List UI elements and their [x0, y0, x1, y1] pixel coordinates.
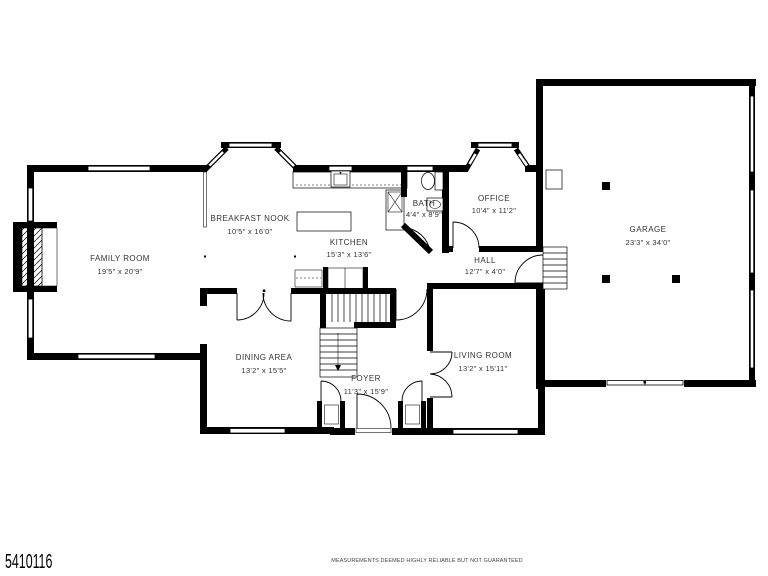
foyer-dims: 11'3" x 15'9" — [344, 387, 389, 396]
hall-dims: 12'7" x 4'0" — [465, 267, 506, 276]
kitchen-name: KITCHEN — [330, 238, 368, 247]
cased-opening-divider — [204, 172, 207, 227]
breakfast-nook-name: BREAKFAST NOOK — [210, 214, 289, 223]
living-room-dims: 13'2" x 15'11" — [459, 364, 508, 373]
room-breakfast-nook: BREAKFAST NOOK 10'5" x 16'0" — [210, 214, 289, 236]
fireplace — [13, 222, 57, 292]
room-foyer: FOYER 11'3" x 15'9" — [344, 374, 389, 396]
room-living-room: LIVING ROOM 13'2" x 15'11" — [454, 351, 512, 373]
floor-plan-canvas: FAMILY ROOM 19'5" x 20'9" BREAKFAST NOOK… — [0, 0, 768, 576]
bath-dims: 4'4" x 8'9" — [406, 210, 442, 219]
kitchen-dims: 15'3" x 13'6" — [326, 250, 371, 259]
toilet — [422, 172, 444, 190]
hall-name: HALL — [474, 256, 496, 265]
bath-diagonal-wall — [403, 225, 431, 252]
dining-area-name: DINING AREA — [236, 353, 293, 362]
kitchen-island — [297, 212, 351, 231]
room-garage: GARAGE 23'3" x 34'0" — [625, 225, 670, 247]
family-room-dims: 19'5" x 20'9" — [97, 267, 142, 276]
living-room-name: LIVING ROOM — [454, 351, 512, 360]
listing-id: 5410116 — [5, 551, 52, 574]
dining-area-dims: 13'2" x 15'5" — [241, 366, 286, 375]
room-kitchen: KITCHEN 15'3" x 13'6" — [326, 238, 371, 259]
room-dining-area: DINING AREA 13'2" x 15'5" — [236, 353, 293, 375]
office-name: OFFICE — [478, 194, 510, 203]
office-dims: 10'4" x 11'2" — [472, 206, 517, 215]
kitchen-sink — [331, 171, 350, 187]
front-door — [356, 394, 391, 433]
breakfast-nook-dims: 10'5" x 16'0" — [227, 227, 272, 236]
garage-dims: 23'3" x 34'0" — [625, 238, 670, 247]
office-door — [453, 222, 479, 248]
staircase-garage — [543, 247, 567, 289]
room-hall: HALL 12'7" x 4'0" — [465, 256, 506, 276]
staircase-main — [320, 294, 386, 377]
family-room-name: FAMILY ROOM — [90, 254, 150, 263]
foyer-name: FOYER — [351, 374, 381, 383]
water-heater — [546, 170, 562, 189]
room-family-room: FAMILY ROOM 19'5" x 20'9" — [90, 254, 150, 276]
dining-double-door — [237, 293, 291, 321]
floor-plan-page: FAMILY ROOM 19'5" x 20'9" BREAKFAST NOOK… — [0, 0, 768, 576]
room-office: OFFICE 10'4" x 11'2" — [472, 194, 517, 215]
hall-foyer-door — [396, 289, 427, 320]
measurement-disclaimer: MEASUREMENTS DEEMED HIGHLY RELIABLE BUT … — [327, 558, 527, 564]
bay-window-breakfast — [205, 148, 298, 170]
garage-name: GARAGE — [630, 225, 667, 234]
bay-window-office — [466, 149, 530, 170]
bath-name: BATH — [413, 199, 436, 208]
kitchen-counter — [293, 172, 407, 291]
